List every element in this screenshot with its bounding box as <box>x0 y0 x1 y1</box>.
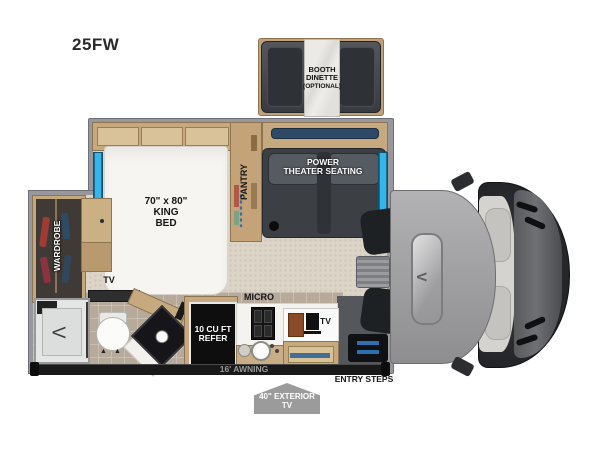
hood-vent <box>516 201 539 214</box>
dinette-label-line3: (OPTIONAL) <box>303 83 341 90</box>
lower-cabinet <box>81 242 112 272</box>
burner <box>254 310 262 323</box>
booth-dinette: BOOTH DINETTE (OPTIONAL) <box>258 38 384 116</box>
drawer-blue-strip <box>290 353 330 358</box>
hanging-clothes <box>40 257 51 284</box>
cabinet-door <box>141 127 183 146</box>
cabinet-door <box>185 127 229 146</box>
faucet <box>275 349 279 353</box>
floor-vent: ▲ <box>100 348 107 355</box>
cab-console <box>356 256 390 288</box>
awning-end-cap <box>30 362 39 376</box>
burner <box>264 325 272 338</box>
refer-label-line2: REFER <box>199 334 228 343</box>
bed-label-line3: BED <box>116 218 216 229</box>
step-tread <box>357 341 379 345</box>
cab-roof: Λ <box>390 190 496 364</box>
model-label: 25FW <box>72 36 119 55</box>
spice-dial <box>238 344 251 357</box>
entry-steps-label: ENTRY STEPS <box>328 375 400 384</box>
exterior-tv-badge: 40" EXTERIOR TV <box>254 383 320 414</box>
kitchen-tv-label: TV <box>320 317 331 326</box>
burner <box>254 325 262 338</box>
floor-vent: ▲ <box>114 348 121 355</box>
faucet <box>270 344 274 348</box>
shower-door <box>86 302 88 358</box>
refrigerator: 10 CU FT REFER <box>189 302 237 366</box>
cooktop <box>251 307 275 340</box>
bedroom-tv-label: TV <box>96 276 122 286</box>
tv-icon <box>306 313 319 330</box>
hood-vent <box>516 334 539 347</box>
kitchen-sink <box>251 341 271 361</box>
nightstand <box>81 198 112 244</box>
hanging-clothes <box>61 213 71 240</box>
dinette-seat-right <box>333 41 381 113</box>
cupholder <box>269 221 279 231</box>
awning-label: 16' AWNING <box>196 364 292 374</box>
living-window-slot <box>271 128 379 139</box>
exterior-tv-line2: TV <box>282 402 292 411</box>
theater-label: POWER THEATER SEATING <box>266 158 380 177</box>
tv-stand-icon <box>304 331 321 334</box>
shower: Λ <box>34 298 90 364</box>
hanging-clothes <box>61 255 71 284</box>
theater-label-line2: THEATER SEATING <box>266 167 380 176</box>
hood-vent <box>524 216 547 230</box>
dinette-seat-left <box>261 41 309 113</box>
pantry-label: PANTRY <box>239 164 249 200</box>
drawer-knob <box>100 219 104 223</box>
bed-label-line1: 70" x 80" <box>116 196 216 207</box>
step-tread <box>357 350 379 354</box>
cabinet-door-brown <box>288 313 304 337</box>
bed-label-line2: KING <box>116 207 216 218</box>
side-mirror-icon <box>450 171 475 192</box>
wardrobe-label: WARDROBE <box>52 221 62 272</box>
side-mirror-icon <box>450 356 475 377</box>
entry-steps <box>348 334 388 362</box>
dinette-table: BOOTH DINETTE (OPTIONAL) <box>304 39 340 117</box>
pantry-item <box>251 183 257 209</box>
hood-vent <box>524 316 547 330</box>
burner <box>264 310 272 323</box>
dinette-seat-cushion <box>339 47 375 107</box>
micro-label: MICRO <box>238 293 280 303</box>
brand-emblem-icon: Λ <box>414 272 430 281</box>
pantry-item <box>251 135 257 151</box>
hanging-clothes <box>39 217 50 248</box>
dinette-label-line2: DINETTE <box>306 74 338 82</box>
vanity-sink <box>153 328 171 346</box>
bed-size-label: 70" x 80" KING BED <box>116 196 216 229</box>
floorplan-canvas: 25FW BOOTH DINETTE (OPTIONAL) 70" x 80" … <box>0 0 600 450</box>
door-swing-mark: Λ <box>50 326 71 338</box>
dinette-seat-cushion <box>267 47 303 107</box>
cabinet-door <box>97 127 139 146</box>
